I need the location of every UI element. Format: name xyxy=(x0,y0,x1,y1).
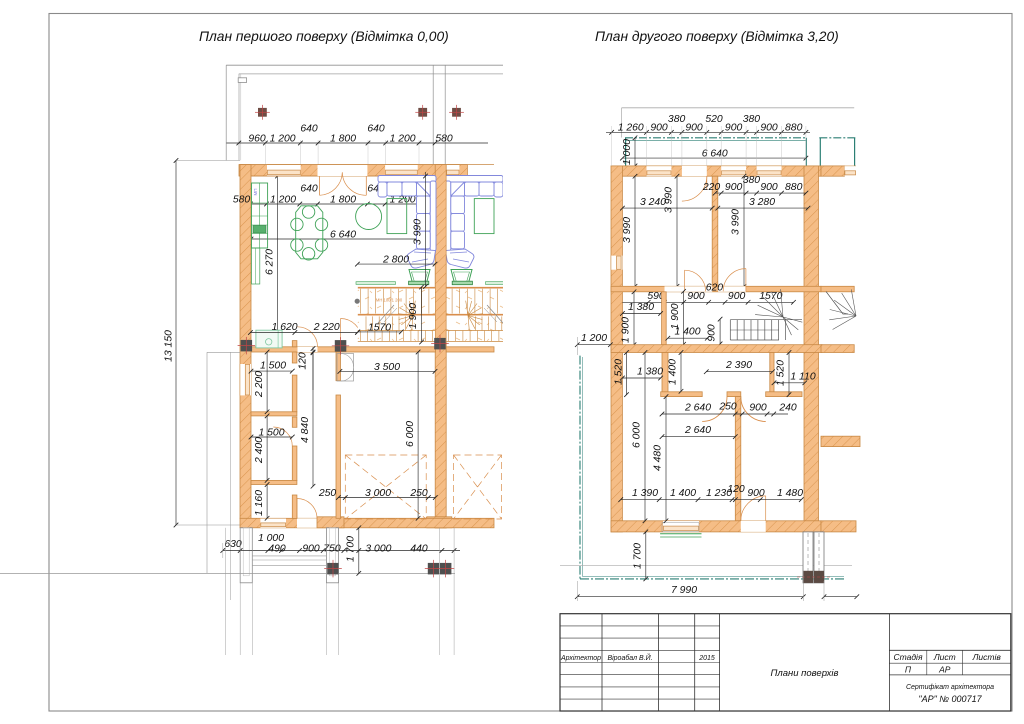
svg-text:1 520: 1 520 xyxy=(614,359,625,385)
svg-text:Сертифікат архітектора: Сертифікат архітектора xyxy=(906,683,994,691)
svg-text:750: 750 xyxy=(323,544,341,555)
svg-text:АР: АР xyxy=(938,665,951,675)
svg-text:2015: 2015 xyxy=(698,655,715,662)
svg-text:МП: МП xyxy=(253,189,258,196)
svg-text:1 260: 1 260 xyxy=(618,122,644,133)
svg-text:120: 120 xyxy=(298,352,309,370)
svg-text:900: 900 xyxy=(760,122,778,133)
svg-text:900: 900 xyxy=(725,122,743,133)
svg-text:490: 490 xyxy=(268,544,286,555)
svg-text:250: 250 xyxy=(409,488,428,499)
svg-text:1 110: 1 110 xyxy=(790,372,815,383)
svg-text:900: 900 xyxy=(687,291,705,302)
svg-text:1 700: 1 700 xyxy=(632,543,643,569)
svg-text:7 990: 7 990 xyxy=(671,585,697,596)
svg-text:1 400: 1 400 xyxy=(670,488,696,499)
svg-text:900: 900 xyxy=(707,324,718,342)
svg-text:1 200: 1 200 xyxy=(390,133,416,144)
svg-text:1570: 1570 xyxy=(368,322,391,333)
svg-text:880: 880 xyxy=(785,122,803,133)
svg-text:3 990: 3 990 xyxy=(664,187,675,213)
svg-text:900: 900 xyxy=(725,182,743,193)
svg-text:3 000: 3 000 xyxy=(365,544,391,555)
svg-text:2 390: 2 390 xyxy=(725,360,752,371)
svg-text:6 270: 6 270 xyxy=(265,249,276,275)
svg-text:Архітектор: Архітектор xyxy=(560,654,601,662)
svg-text:13 150: 13 150 xyxy=(164,330,175,362)
svg-text:1 480: 1 480 xyxy=(777,488,803,499)
svg-text:900: 900 xyxy=(302,544,320,555)
svg-text:3 280: 3 280 xyxy=(749,197,775,208)
svg-text:640: 640 xyxy=(300,124,318,135)
svg-text:1 500: 1 500 xyxy=(258,427,284,438)
svg-text:1 200: 1 200 xyxy=(270,194,296,205)
svg-text:1 620: 1 620 xyxy=(272,322,298,333)
svg-text:630: 630 xyxy=(224,539,242,550)
svg-text:220: 220 xyxy=(702,182,721,193)
svg-text:Листів: Листів xyxy=(972,652,1002,662)
svg-text:240: 240 xyxy=(778,403,797,414)
svg-text:2 800: 2 800 xyxy=(382,255,409,266)
svg-text:"АР" № 000717: "АР" № 000717 xyxy=(918,694,982,704)
svg-text:900: 900 xyxy=(760,182,778,193)
svg-text:1 900: 1 900 xyxy=(621,317,632,343)
svg-text:380: 380 xyxy=(743,175,761,186)
svg-text:900: 900 xyxy=(749,403,767,414)
svg-text:1570: 1570 xyxy=(759,291,782,302)
svg-text:2 640: 2 640 xyxy=(684,425,711,436)
svg-text:1 900: 1 900 xyxy=(408,303,419,329)
svg-text:6 640: 6 640 xyxy=(702,149,728,160)
svg-text:Стадія: Стадія xyxy=(894,652,923,662)
svg-text:2 640: 2 640 xyxy=(684,403,711,414)
svg-text:380: 380 xyxy=(743,114,761,125)
svg-text:4 840: 4 840 xyxy=(300,417,311,443)
svg-text:900: 900 xyxy=(728,291,746,302)
svg-text:580: 580 xyxy=(233,194,251,205)
svg-text:П: П xyxy=(905,665,912,675)
svg-text:1 160: 1 160 xyxy=(254,490,265,516)
svg-text:6 000: 6 000 xyxy=(405,421,416,447)
svg-text:1 800: 1 800 xyxy=(330,194,356,205)
svg-text:440: 440 xyxy=(410,544,428,555)
svg-text:Плани поверхів: Плани поверхів xyxy=(770,668,838,679)
svg-text:1 700: 1 700 xyxy=(346,536,357,562)
svg-text:900: 900 xyxy=(650,122,668,133)
svg-text:960: 960 xyxy=(248,133,266,144)
svg-text:6 000: 6 000 xyxy=(632,422,643,448)
svg-text:1 520: 1 520 xyxy=(776,360,787,386)
svg-text:250: 250 xyxy=(718,402,737,413)
svg-text:Віроабал В.Й.: Віроабал В.Й. xyxy=(607,653,652,662)
svg-text:250: 250 xyxy=(318,488,337,499)
svg-text:3 990: 3 990 xyxy=(622,217,633,243)
svg-text:3 990: 3 990 xyxy=(413,219,424,245)
svg-text:640: 640 xyxy=(367,124,385,135)
svg-text:2 400: 2 400 xyxy=(254,437,265,464)
svg-text:900: 900 xyxy=(685,122,703,133)
svg-text:Лист: Лист xyxy=(933,652,956,662)
svg-text:640: 640 xyxy=(300,184,318,195)
svg-text:520: 520 xyxy=(705,114,723,125)
svg-text:2 200: 2 200 xyxy=(254,371,265,398)
svg-text:3 000: 3 000 xyxy=(365,488,391,499)
svg-text:1 400: 1 400 xyxy=(674,327,700,338)
svg-text:1 400: 1 400 xyxy=(668,359,679,385)
svg-text:2 220: 2 220 xyxy=(313,322,340,333)
svg-text:3 990: 3 990 xyxy=(731,209,742,235)
svg-text:МН 100/1 200: МН 100/1 200 xyxy=(376,298,403,303)
svg-text:1 200: 1 200 xyxy=(270,133,296,144)
svg-text:1 800: 1 800 xyxy=(330,133,356,144)
svg-text:900: 900 xyxy=(747,488,765,499)
svg-text:План першого поверху (Відмітк: План першого поверху (Відмітка 0,00) xyxy=(199,29,449,44)
svg-text:1 380: 1 380 xyxy=(628,302,654,313)
svg-text:580: 580 xyxy=(435,133,453,144)
svg-text:1 000: 1 000 xyxy=(258,533,284,544)
svg-text:1 380: 1 380 xyxy=(637,367,663,378)
svg-text:6 640: 6 640 xyxy=(330,229,356,240)
svg-text:620: 620 xyxy=(706,283,724,294)
svg-text:880: 880 xyxy=(785,182,803,193)
svg-text:1 500: 1 500 xyxy=(260,361,286,372)
svg-text:4 480: 4 480 xyxy=(653,445,664,471)
svg-text:1 200: 1 200 xyxy=(581,333,607,344)
svg-text:3 240: 3 240 xyxy=(640,197,666,208)
svg-text:3 500: 3 500 xyxy=(374,362,400,373)
svg-text:1 000: 1 000 xyxy=(622,139,633,165)
svg-text:380: 380 xyxy=(668,114,686,125)
svg-text:1 390: 1 390 xyxy=(632,488,658,499)
svg-text:120: 120 xyxy=(727,484,745,495)
svg-text:План другого поверху (Відмітк: План другого поверху (Відмітка 3,20) xyxy=(595,29,839,44)
